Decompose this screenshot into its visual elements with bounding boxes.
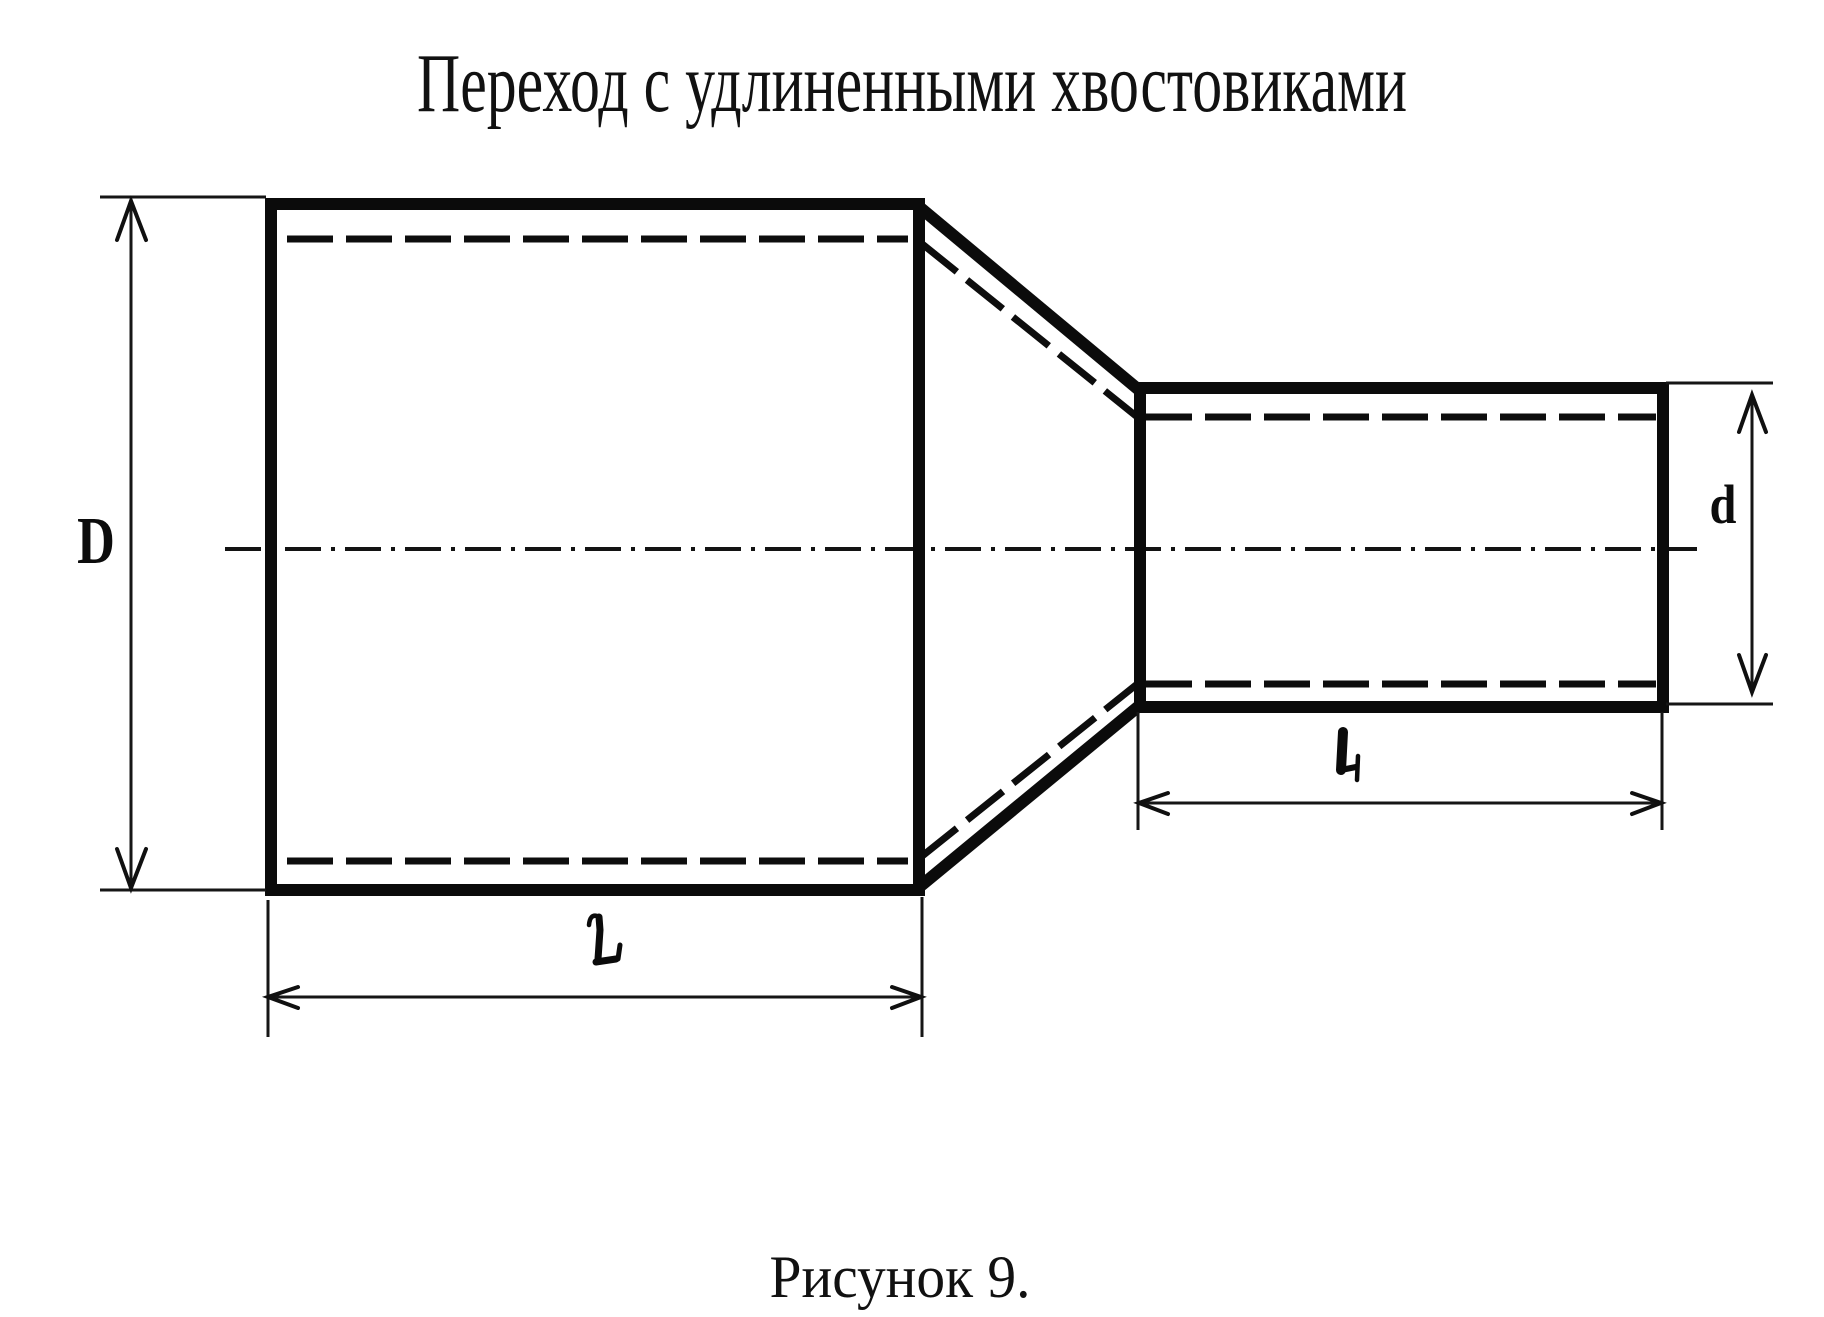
svg-text:d: d — [1710, 475, 1737, 536]
svg-text:Рисунок 9.: Рисунок 9. — [770, 1244, 1031, 1310]
svg-text:D: D — [77, 503, 115, 578]
svg-text:Переход с удлиненными хвостови: Переход с удлиненными хвостовиками — [417, 37, 1407, 130]
